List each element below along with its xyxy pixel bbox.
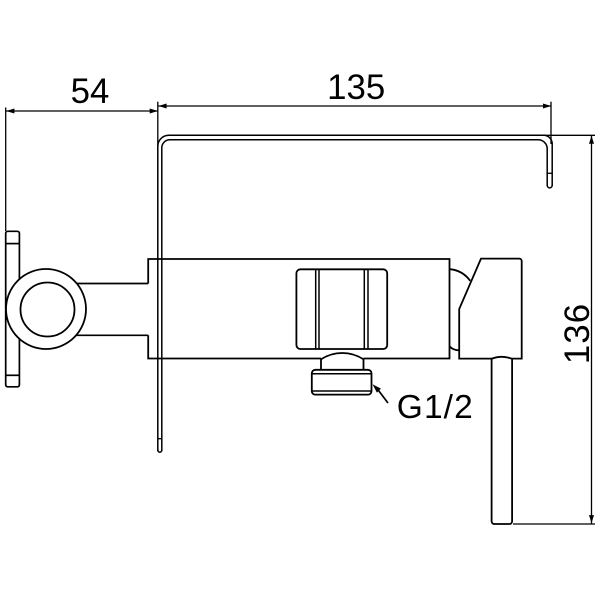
svg-text:54: 54 xyxy=(71,72,110,111)
svg-text:135: 135 xyxy=(327,68,385,107)
svg-text:136: 136 xyxy=(558,303,597,364)
svg-text:G1/2: G1/2 xyxy=(397,389,474,426)
